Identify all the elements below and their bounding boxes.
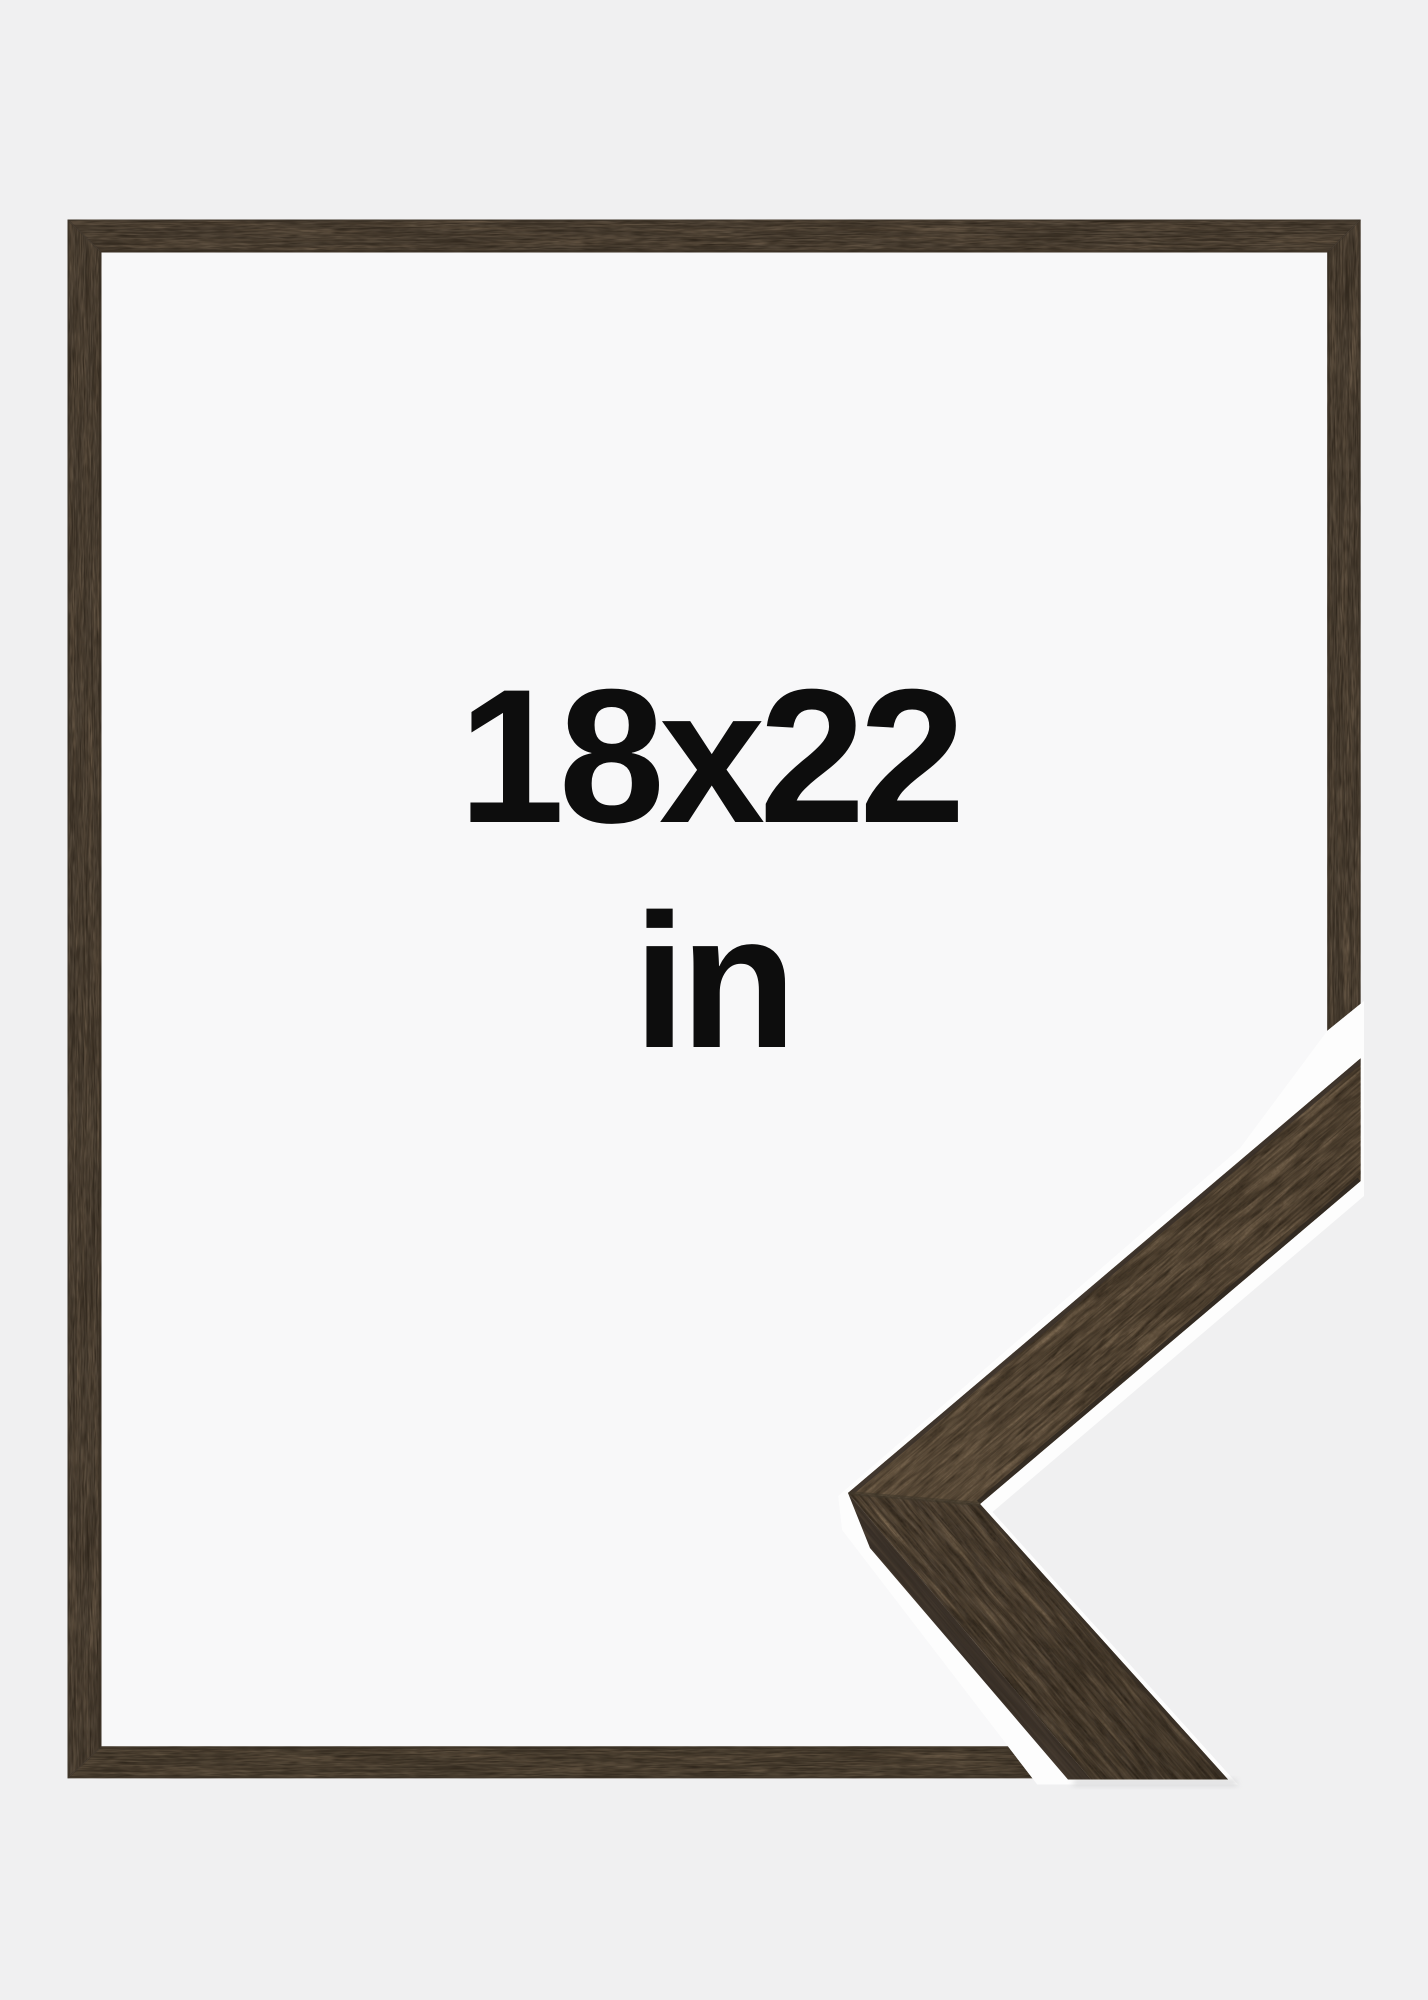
svg-text:in: in <box>633 875 791 1088</box>
svg-text:18x22: 18x22 <box>458 650 959 863</box>
